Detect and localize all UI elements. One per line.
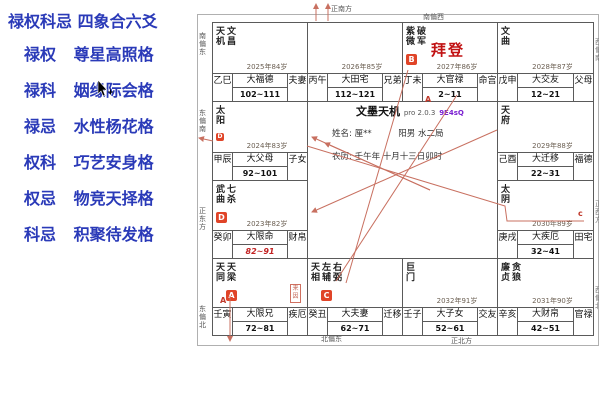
palace-subbox: 己酉 大迁移 22~31 福德: [498, 152, 593, 180]
app-window: 禄权科忌 四象合六爻 禄权 尊星高照格 禄科 姻缘际会格 禄忌 水性杨花格 权科…: [0, 0, 600, 400]
pattern-name: 姻缘际会格: [74, 81, 154, 100]
person-name: 姓名: 厘**: [332, 129, 372, 139]
palace-cell[interactable]: 太阳 2024年83岁 甲辰 大父母 92~101 子女 D: [212, 101, 308, 181]
palace-cell[interactable]: 天机文昌 2025年84岁 乙巳 大福德 102~111 夫妻: [212, 22, 308, 102]
palace-age-range: 112~121: [328, 88, 382, 101]
palace-stars: 天府: [501, 106, 511, 126]
palace-age-range: 42~51: [518, 322, 573, 335]
palace-subbox: 癸卯 大限命 82~91 财帛: [213, 230, 307, 258]
palace-stars: 巨门: [406, 263, 416, 283]
star-name: 天梁: [227, 263, 237, 283]
palace-age-range: 32~41: [518, 245, 573, 258]
palace-year-age: 2031年90岁: [498, 296, 593, 306]
palace-stem-branch: 甲辰: [213, 153, 233, 180]
palace-stars: 天相左辅右弼: [311, 263, 343, 283]
star-name: 天相: [311, 263, 321, 283]
palace-year-age: 2028年87岁: [498, 62, 593, 72]
palace-year-age: 2024年83岁: [213, 141, 307, 151]
person-name-row: 姓名: 厘** 阳男 水二局: [332, 127, 443, 139]
star-name: 破军: [417, 27, 427, 47]
palace-year-age: 2023年82岁: [213, 219, 307, 229]
palace-cell[interactable]: 廉贞贪狼 2031年90岁 辛亥 大财帛 42~51 官禄: [497, 258, 594, 336]
palace-name: 交友: [477, 308, 497, 335]
star-name: 太阳: [216, 106, 226, 126]
palace-subbox: 丙午 大田宅 112~121 兄弟: [308, 73, 402, 101]
palace-name: 疾厄: [287, 308, 307, 335]
pattern-list-item: 禄忌 水性杨花格: [24, 113, 193, 137]
palace-name: 兄弟: [382, 74, 402, 101]
pattern-name: 水性杨花格: [74, 117, 154, 136]
palace-age-range: 52~61: [423, 322, 477, 335]
direction-label-clipped: 西偏南: [595, 38, 599, 64]
pattern-name: 尊星高照格: [74, 45, 154, 64]
pattern-pair: 禄权: [24, 41, 68, 65]
pattern-name: 巧艺安身格: [74, 153, 154, 172]
app-code: 9E4sQ: [439, 109, 464, 117]
palace-name: 子女: [287, 153, 307, 180]
palace-subbox: 戊申 大交友 12~21 父母: [498, 73, 593, 101]
palace-subbox: 乙巳 大福德 102~111 夫妻: [213, 73, 307, 101]
sihua-line-letter: A: [220, 296, 226, 305]
direction-label-clipped: 正西方: [595, 200, 599, 226]
sihua-badge-d: D: [216, 212, 227, 223]
palace-cell[interactable]: 紫微破军 2027年86岁 丁未 大官禄 2~11 命宫 B拜登: [402, 22, 498, 102]
direction-label: 正北方: [451, 336, 472, 346]
pattern-name: 积聚待发格: [74, 225, 154, 244]
palace-decade-label: 大财帛: [518, 308, 573, 322]
palace-subbox: 辛亥 大财帛 42~51 官禄: [498, 307, 593, 335]
palace-cell[interactable]: 巨门 2032年91岁 壬子 大子女 52~61 交友: [402, 258, 498, 336]
palace-name: 迁移: [382, 308, 402, 335]
star-name: 天机: [216, 27, 226, 47]
palace-stars: 太阴: [501, 185, 511, 205]
pattern-list-title: 禄权科忌 四象合六爻: [8, 8, 193, 32]
palace-stem-branch: 丙午: [308, 74, 328, 101]
pattern-pair: 禄科: [24, 77, 68, 101]
star-name: 贪狼: [512, 263, 522, 283]
sihua-line-letter: c: [578, 209, 583, 218]
pattern-list: 禄权科忌 四象合六爻 禄权 尊星高照格 禄科 姻缘际会格 禄忌 水性杨花格 权科…: [8, 8, 193, 257]
palace-age-range: 92~101: [233, 167, 287, 180]
palace-decade-label: 大父母: [233, 153, 287, 167]
palace-grid: 天机文昌 2025年84岁 乙巳 大福德 102~111 夫妻 2026年85岁…: [212, 22, 594, 336]
palace-age-range: 22~31: [518, 167, 573, 180]
palace-subbox: 壬寅 大限兄 72~81 疾厄: [213, 307, 307, 335]
palace-name: 财帛: [287, 231, 307, 258]
palace-age-range: 62~71: [328, 322, 382, 335]
palace-stem-branch: 癸丑: [308, 308, 328, 335]
palace-year-age: 2025年84岁: [213, 62, 307, 72]
pattern-list-item: 科忌 积聚待发格: [24, 221, 193, 245]
pattern-pair: 禄忌: [24, 113, 68, 137]
sihua-badge-d: D: [216, 133, 224, 141]
app-title: 文墨天机 pro 2.0.3 9E4sQ: [356, 103, 464, 119]
palace-cell[interactable]: 天府 2029年88岁 己酉 大迁移 22~31 福德: [497, 101, 594, 181]
pattern-list-item: 权科 巧艺安身格: [24, 149, 193, 173]
palace-cell[interactable]: 2026年85岁 丙午 大田宅 112~121 兄弟: [307, 22, 403, 102]
star-name: 天府: [501, 106, 511, 126]
laiyin-stamp: 来因: [290, 284, 301, 303]
pattern-pair: 权忌: [24, 185, 68, 209]
star-name: 廉贞: [501, 263, 511, 283]
palace-age-range: 12~21: [518, 88, 573, 101]
palace-name: 父母: [573, 74, 593, 101]
palace-year-age: 2032年91岁: [403, 296, 497, 306]
palace-stars: 紫微破军: [406, 27, 427, 47]
palace-stem-branch: 乙巳: [213, 74, 233, 101]
pattern-list-item: 权忌 物竞天择格: [24, 185, 193, 209]
direction-label: 正南方: [331, 4, 352, 14]
palace-stars: 文曲: [501, 27, 511, 47]
app-title-text: 文墨天机: [356, 105, 400, 118]
highlighted-person-name: 拜登: [431, 39, 465, 60]
star-name: 右弼: [333, 263, 343, 283]
palace-decade-label: 大限兄: [233, 308, 287, 322]
palace-decade-label: 大交友: [518, 74, 573, 88]
star-name: 文曲: [501, 27, 511, 47]
star-name: 七杀: [227, 185, 237, 205]
palace-stem-branch: 壬子: [403, 308, 423, 335]
palace-subbox: 癸丑 大夫妻 62~71 迁移: [308, 307, 402, 335]
palace-name: 官禄: [573, 308, 593, 335]
direction-label: 东偏北: [199, 305, 207, 329]
palace-name: 夫妻: [287, 74, 307, 101]
app-version: pro 2.0.3: [404, 109, 436, 117]
palace-stars: 武曲七杀: [216, 185, 237, 205]
palace-cell[interactable]: 天同天梁 壬寅 大限兄 72~81 疾厄 A来因: [212, 258, 308, 336]
palace-stem-branch: 己酉: [498, 153, 518, 180]
pattern-pair: 权科: [24, 149, 68, 173]
palace-stem-branch: 癸卯: [213, 231, 233, 258]
palace-subbox: 甲辰 大父母 92~101 子女: [213, 152, 307, 180]
palace-subbox: 壬子 大子女 52~61 交友: [403, 307, 497, 335]
direction-label: 正东方: [199, 207, 207, 231]
palace-stem-branch: 庚戌: [498, 231, 518, 258]
palace-cell[interactable]: 天相左辅右弼 癸丑 大夫妻 62~71 迁移 C: [307, 258, 403, 336]
sihua-line-letter: A: [425, 95, 431, 104]
direction-label: 南偏西: [423, 12, 444, 22]
palace-name: 田宅: [573, 231, 593, 258]
star-name: 紫微: [406, 27, 416, 47]
palace-decade-label: 大迁移: [518, 153, 573, 167]
star-name: 武曲: [216, 185, 226, 205]
palace-cell[interactable]: 文曲 2028年87岁 戊申 大交友 12~21 父母: [497, 22, 594, 102]
pattern-pair: 科忌: [24, 221, 68, 245]
pattern-list-item: 禄权 尊星高照格: [24, 41, 193, 65]
palace-stem-branch: 戊申: [498, 74, 518, 101]
direction-label: 东偏南: [199, 109, 207, 133]
palace-decade-label: 大田宅: [328, 74, 382, 88]
palace-cell[interactable]: 太阴 2030年89岁 庚戌 大疾厄 32~41 田宅: [497, 180, 594, 259]
star-name: 太阴: [501, 185, 511, 205]
star-name: 左辅: [322, 263, 332, 283]
palace-stars: 太阳: [216, 106, 226, 126]
palace-decade-label: 大官禄: [423, 74, 477, 88]
palace-decade-label: 大福德: [233, 74, 287, 88]
palace-subbox: 丁未 大官禄 2~11 命宫: [403, 73, 497, 101]
palace-decade-label: 大子女: [423, 308, 477, 322]
palace-stem-branch: 丁未: [403, 74, 423, 101]
star-name: 天同: [216, 263, 226, 283]
sihua-badge-b: B: [406, 54, 417, 65]
sihua-badge-c: C: [321, 290, 332, 301]
palace-year-age: 2027年86岁: [403, 62, 497, 72]
star-name: 巨门: [406, 263, 416, 283]
palace-decade-label: 大疾厄: [518, 231, 573, 245]
palace-age-range: 102~111: [233, 88, 287, 101]
palace-subbox: 庚戌 大疾厄 32~41 田宅: [498, 230, 593, 258]
star-name: 文昌: [227, 27, 237, 47]
palace-stem-branch: 辛亥: [498, 308, 518, 335]
palace-decade-label: 大夫妻: [328, 308, 382, 322]
palace-stars: 天机文昌: [216, 27, 237, 47]
palace-name: 福德: [573, 153, 593, 180]
pattern-name: 物竞天择格: [74, 189, 154, 208]
palace-name: 命宫: [477, 74, 497, 101]
palace-stem-branch: 壬寅: [213, 308, 233, 335]
palace-year-age: 2030年89岁: [498, 219, 593, 229]
person-lunar-date: 农历: 壬午年 十月十三日卯时: [332, 150, 442, 162]
palace-stars: 天同天梁: [216, 263, 237, 283]
palace-age-range: 72~81: [233, 322, 287, 335]
sihua-badge-a: A: [226, 290, 237, 301]
direction-label-clipped: 西偏北: [595, 286, 599, 312]
palace-age-range: 82~91: [233, 245, 287, 258]
person-gender-bureau: 阳男 水二局: [398, 129, 443, 139]
palace-stars: 廉贞贪狼: [501, 263, 522, 283]
direction-label: 南偏东: [199, 32, 207, 56]
palace-cell[interactable]: 武曲七杀 2023年82岁 癸卯 大限命 82~91 财帛 D: [212, 180, 308, 259]
palace-year-age: 2029年88岁: [498, 141, 593, 151]
pattern-list-item: 禄科 姻缘际会格: [24, 77, 193, 101]
palace-year-age: 2026年85岁: [308, 62, 402, 72]
palace-decade-label: 大限命: [233, 231, 287, 245]
